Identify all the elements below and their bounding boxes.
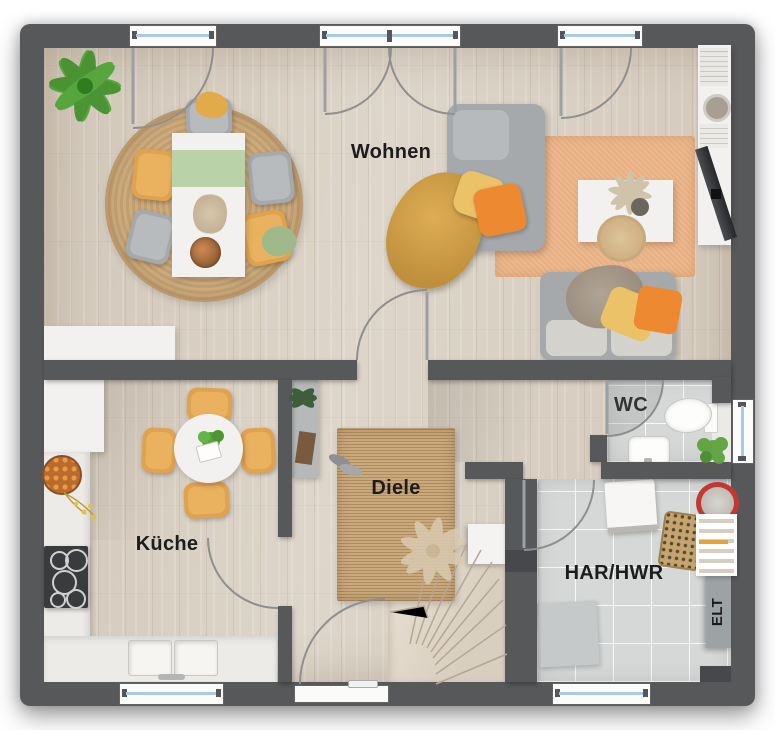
wall-har-north-left bbox=[465, 462, 523, 479]
burner-4 bbox=[50, 592, 66, 608]
window-top-3 bbox=[558, 26, 642, 46]
wall-har-north-right bbox=[601, 462, 731, 479]
tv-mount bbox=[711, 189, 721, 199]
burner-2 bbox=[65, 549, 88, 572]
kitchen-chair-right bbox=[240, 427, 276, 474]
shelf-rack bbox=[696, 514, 737, 576]
pillow-orange-2 bbox=[633, 285, 684, 336]
decor-tray bbox=[597, 215, 646, 262]
decor-bowl bbox=[190, 237, 221, 268]
sink-basin-right bbox=[174, 640, 218, 676]
wall-chimney-block bbox=[505, 550, 537, 572]
har-recess bbox=[700, 666, 731, 682]
table-runner bbox=[172, 150, 245, 187]
dining-chair-left bbox=[131, 148, 178, 202]
candle bbox=[703, 94, 731, 122]
pillow-orange bbox=[472, 182, 529, 239]
book-stack-top bbox=[700, 48, 728, 86]
kitchen-chair-left bbox=[141, 427, 177, 474]
sink-basin-left bbox=[128, 640, 172, 676]
wall-kitchen-east-upper bbox=[278, 380, 292, 537]
floor-mat bbox=[536, 600, 599, 667]
wall-living-south-left bbox=[44, 360, 357, 380]
room-label-har-hwr: HAR/HWR bbox=[558, 562, 670, 585]
washing-machine bbox=[604, 479, 657, 533]
room-label-wc: WC bbox=[606, 394, 656, 417]
floor-plan: Wohnen Küche Diele WC HAR/HWR ELT bbox=[0, 0, 775, 730]
wall-wc-west-stub bbox=[590, 435, 607, 462]
window-top-2 bbox=[320, 26, 460, 46]
kitchen-table bbox=[174, 414, 243, 483]
fruit-basket bbox=[42, 455, 82, 495]
room-label-diele: Diele bbox=[355, 477, 437, 500]
entrance-door bbox=[295, 686, 388, 702]
room-label-elt: ELT bbox=[698, 588, 738, 636]
window-har bbox=[553, 684, 650, 704]
sideboard bbox=[44, 326, 175, 362]
wall-living-south-right bbox=[428, 360, 731, 380]
fridge-cabinet bbox=[44, 378, 104, 452]
room-label-wohnen: Wohnen bbox=[346, 141, 436, 164]
burner-5 bbox=[66, 589, 86, 609]
room-label-kueche: Küche bbox=[132, 533, 202, 556]
book-stack-mid bbox=[700, 124, 728, 148]
sofa-cushion bbox=[453, 110, 509, 160]
window-kitchen bbox=[120, 684, 223, 704]
shelf-towel-orange bbox=[699, 540, 728, 544]
kitchen-chair-bottom bbox=[183, 481, 230, 519]
wall-kitchen-east-lower bbox=[278, 606, 292, 682]
entrance-door-handle bbox=[348, 680, 378, 688]
faucet bbox=[158, 674, 185, 680]
hall-jute-rug bbox=[337, 428, 455, 601]
stair-stub-wall bbox=[468, 524, 507, 564]
window-top-1 bbox=[130, 26, 216, 46]
dried-bouquet bbox=[193, 193, 227, 235]
dining-chair-right bbox=[246, 150, 295, 206]
wall-har-west bbox=[505, 479, 537, 682]
wall-wc-pillar bbox=[712, 377, 731, 403]
window-wc bbox=[733, 400, 753, 463]
